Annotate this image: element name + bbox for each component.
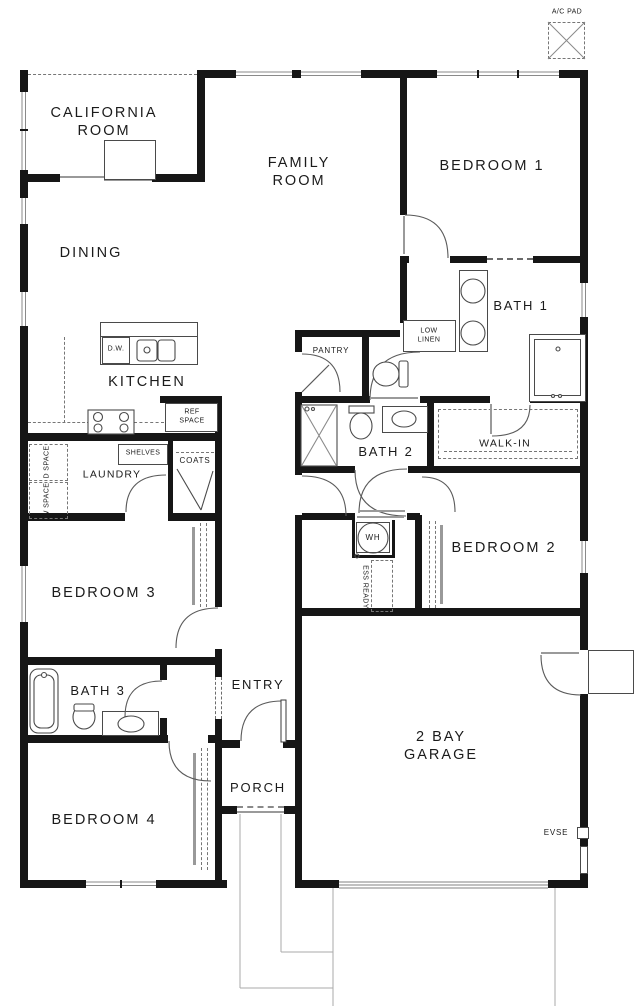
counter-dashed (28, 422, 90, 423)
toilet-tank (74, 704, 94, 711)
window (437, 70, 559, 78)
wall-segment (215, 521, 222, 607)
front-door-leaf (281, 700, 286, 742)
ac-pad-outline (548, 22, 585, 59)
room-label-entry: ENTRY (232, 677, 285, 693)
room-label-bedroom-4: BEDROOM 4 (51, 811, 156, 829)
wall-segment (415, 515, 422, 608)
label-water-heater: WH (366, 533, 381, 543)
door-swing (302, 354, 340, 392)
shower-valve (312, 408, 315, 411)
toilet-bowl (373, 362, 399, 386)
room-label-dining: DINING (60, 244, 123, 262)
sliding-door-panel (60, 176, 108, 178)
wall-segment (20, 735, 168, 743)
tub (30, 669, 58, 733)
label-w-space: W SPACE (44, 483, 53, 518)
range-outline (88, 410, 134, 434)
plan-linework (0, 0, 642, 1008)
window (20, 566, 28, 622)
electrical-panel (580, 846, 588, 874)
door-swing (176, 608, 218, 648)
window-pier (292, 70, 301, 78)
wall-segment (197, 70, 205, 182)
wall-segment (20, 657, 222, 665)
door-swing (541, 655, 581, 695)
bath1-vanity (459, 270, 488, 352)
counter-dashed (64, 337, 65, 423)
shower-valve (305, 407, 309, 411)
burner (94, 424, 102, 432)
room-label-pantry: PANTRY (313, 346, 350, 356)
wall-segment (295, 513, 355, 520)
label-d-space: D SPACE (44, 445, 53, 478)
walkin-rod (444, 451, 572, 452)
label-ess-ready: ESS READY (360, 565, 369, 609)
door-swing (359, 469, 407, 513)
wall-segment (295, 330, 302, 880)
wall-segment (420, 396, 490, 403)
wall-segment (160, 396, 222, 403)
wall-segment (400, 256, 409, 263)
room-label-bedroom-2: BEDROOM 2 (451, 539, 556, 557)
room-label-laundry: LAUNDRY (83, 468, 141, 481)
wall-segment (215, 806, 239, 814)
counter-dashed (134, 422, 164, 423)
room-label-bath-2: BATH 2 (358, 444, 413, 460)
wall-segment (215, 659, 222, 677)
wall-segment (284, 806, 300, 814)
room-label-california-room: CALIFORNIA ROOM (50, 104, 157, 140)
label-dishwasher: D.W. (108, 346, 125, 355)
burner (94, 413, 103, 422)
door-swing (405, 215, 448, 258)
wall-segment (215, 441, 222, 516)
wall-segment (215, 748, 222, 806)
closet-door (440, 525, 443, 604)
wall-segment (400, 78, 407, 215)
door-swing (169, 741, 211, 781)
tub-basin (34, 675, 54, 728)
window-mullion (20, 129, 28, 131)
toilet-tank (399, 361, 408, 387)
bath2-vanity (382, 406, 428, 433)
wall-segment (362, 337, 369, 400)
label-coats: COATS (180, 456, 211, 466)
closet-shelf (207, 748, 208, 870)
toilet-bowl (350, 413, 372, 439)
window-mullion (517, 70, 519, 78)
ac-pad-label: A/C PAD (552, 9, 582, 18)
window-mullion (477, 70, 479, 78)
window (580, 283, 588, 317)
door-swing (422, 477, 455, 512)
closet-door (193, 753, 196, 865)
room-label-walk-in: WALK-IN (479, 437, 531, 450)
wall-segment (427, 403, 434, 466)
shower-x (302, 406, 336, 465)
porch-sill (237, 806, 284, 814)
media-niche (104, 140, 156, 180)
window (236, 70, 292, 78)
cased-opening (215, 677, 222, 719)
hall-door-opening (295, 475, 302, 515)
room-label-porch: PORCH (230, 780, 286, 796)
shower (301, 405, 337, 466)
room-label-kitchen: KITCHEN (108, 373, 186, 391)
closet-shelf (435, 521, 436, 608)
wall-segment (548, 880, 588, 888)
wall-segment (295, 330, 400, 337)
door-swing (241, 701, 282, 741)
room-label-garage: 2 BAY GARAGE (404, 728, 478, 764)
wall-segment (20, 433, 222, 441)
dashed-wall-opening (487, 256, 533, 263)
bath1-shower-glass (534, 339, 581, 396)
wall-segment (295, 608, 588, 616)
closet-shelf (201, 748, 202, 870)
label-evse: EVSE (544, 828, 569, 838)
window (20, 198, 28, 224)
wall-segment (408, 466, 588, 473)
ess-ready-outline (371, 560, 393, 612)
coats-shelf (176, 452, 214, 453)
room-label-bedroom-3: BEDROOM 3 (51, 584, 156, 602)
window (20, 292, 28, 326)
tub-faucet (42, 673, 47, 678)
closet-shelf (200, 523, 201, 607)
wall-segment (295, 396, 370, 403)
door-swing (370, 352, 420, 400)
wall-segment (400, 263, 407, 323)
wall-segment (160, 718, 167, 735)
room-label-family-room: FAMILY ROOM (268, 154, 331, 190)
california-open-edge (28, 74, 197, 75)
wall-segment (220, 740, 240, 748)
room-label-bath-3: BATH 3 (70, 683, 125, 699)
wall-segment (295, 880, 339, 888)
site-lines (240, 814, 555, 1006)
closet-door (192, 527, 195, 605)
toilet-tank (349, 406, 374, 413)
room-label-bath-1: BATH 1 (493, 298, 548, 314)
label-low-linen: LOW LINEN (418, 327, 441, 345)
wall-segment (160, 665, 167, 680)
wall-segment (168, 441, 173, 513)
wall-segment (352, 555, 395, 558)
label-shelves: SHELVES (126, 450, 161, 459)
window (301, 70, 361, 78)
window (580, 541, 588, 573)
garage-door (339, 882, 548, 888)
evse-outlet (577, 827, 589, 839)
toilet-bowl (73, 705, 95, 729)
bifold-door (177, 469, 213, 510)
wall-segment (283, 740, 300, 748)
closet-shelf (429, 521, 430, 608)
garage-door-landing (588, 650, 634, 694)
floor-plan: A/C PAD CALIFORNIA ROOM FAMILY ROOM BEDR… (0, 0, 642, 1008)
wall-segment (392, 520, 395, 557)
pantry-door-leaf (302, 365, 329, 392)
window (20, 92, 28, 170)
pantry-door-opening (295, 352, 302, 392)
range (88, 410, 134, 434)
bath3-vanity (102, 711, 159, 736)
room-label-bedroom-1: BEDROOM 1 (439, 157, 544, 175)
garage-side-door-opening (580, 650, 588, 694)
window-mullion (120, 880, 122, 888)
wall-segment (20, 70, 28, 888)
door-swing (302, 476, 346, 516)
wall-segment (580, 70, 588, 888)
wall-segment (295, 466, 355, 473)
label-ref-space: REF SPACE (179, 408, 204, 426)
burner (120, 424, 128, 432)
closet-shelf (206, 523, 207, 607)
door-swing (355, 470, 406, 516)
laundry-door-opening (125, 513, 168, 521)
burner (120, 413, 129, 422)
wall-segment (352, 520, 355, 557)
